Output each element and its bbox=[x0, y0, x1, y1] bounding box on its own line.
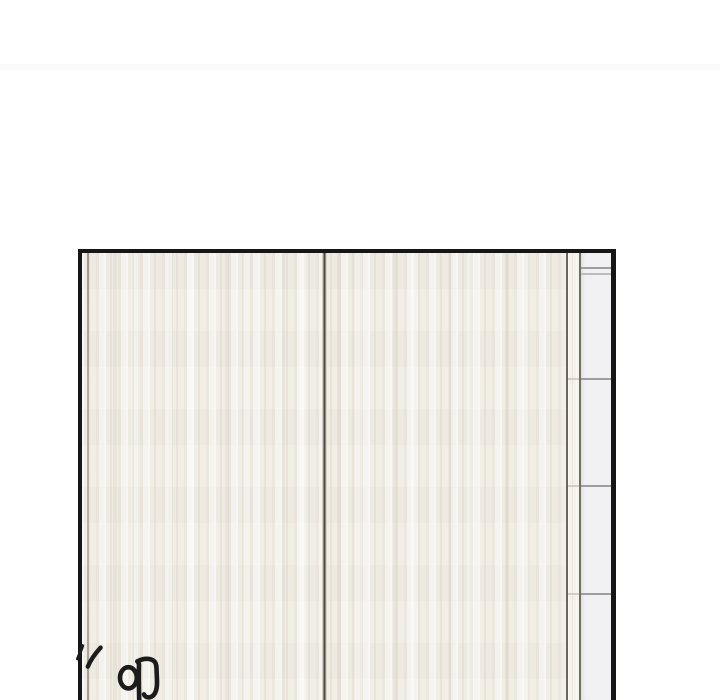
shelf-divider bbox=[581, 273, 611, 275]
sfx-sound-effect bbox=[70, 632, 185, 700]
shelf-divider bbox=[581, 267, 611, 269]
frame-shelf-tick bbox=[568, 378, 579, 380]
frame-shelf-tick bbox=[568, 593, 579, 595]
shelf-divider bbox=[581, 378, 611, 380]
sfx-motion-tick-small bbox=[78, 646, 83, 659]
shelf-divider bbox=[581, 485, 611, 487]
sfx-glyph-left-leg bbox=[137, 661, 139, 700]
shelf-divider bbox=[581, 593, 611, 595]
wardrobe-frame-strip bbox=[566, 253, 581, 700]
frame-shelf-tick bbox=[568, 485, 579, 487]
sfx-motion-tick-large bbox=[88, 648, 101, 667]
sfx-glyph-circle bbox=[120, 667, 137, 688]
comic-page bbox=[0, 0, 720, 700]
shelf-column bbox=[581, 253, 611, 700]
door-center-seam bbox=[322, 253, 327, 700]
page-seam-band bbox=[0, 64, 720, 70]
